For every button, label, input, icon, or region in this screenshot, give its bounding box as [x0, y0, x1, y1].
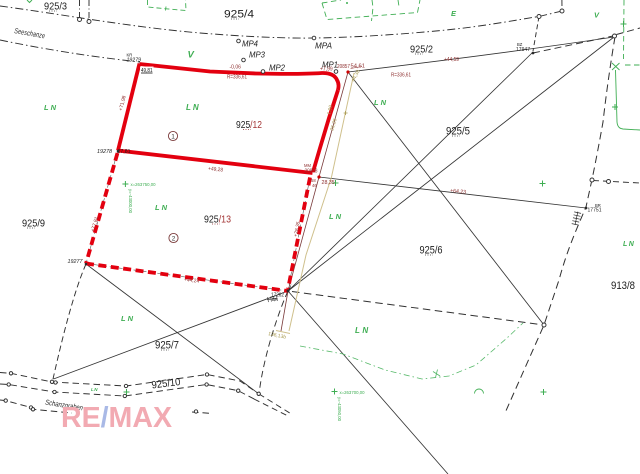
- svg-text:MP3: MP3: [249, 50, 265, 60]
- svg-text:913/8: 913/8: [611, 280, 635, 292]
- svg-text:-0,06: -0,06: [230, 65, 242, 71]
- svg-text:LN: LN: [121, 314, 135, 323]
- svg-text:LN: LN: [155, 203, 169, 212]
- svg-text:y=-43000,00: y=-43000,00: [128, 189, 133, 214]
- svg-text:LN: LN: [329, 212, 343, 221]
- svg-text:+44,59: +44,59: [444, 57, 459, 63]
- svg-text:V: V: [188, 50, 195, 61]
- svg-text:925/12: 925/12: [236, 120, 262, 131]
- svg-text:1: 1: [171, 134, 175, 141]
- svg-text:+7,99: +7,99: [320, 67, 333, 73]
- svg-text:19278: 19278: [97, 149, 113, 155]
- svg-text:LN: LN: [91, 387, 98, 392]
- svg-text:MPA: MPA: [315, 41, 332, 51]
- svg-text:46: 46: [312, 183, 317, 188]
- svg-text:20858: 20858: [305, 169, 318, 175]
- svg-text:RE/MAX: RE/MAX: [61, 402, 172, 434]
- svg-text:20857: 20857: [337, 64, 350, 70]
- svg-text:17947: 17947: [516, 47, 530, 53]
- svg-text:27,81: 27,81: [118, 149, 131, 155]
- svg-text:925/3: 925/3: [44, 1, 67, 13]
- svg-text:BR: BR: [272, 297, 278, 302]
- svg-text:925/9: 925/9: [22, 218, 45, 230]
- svg-text:MP2: MP2: [269, 63, 285, 73]
- svg-text:LN: LN: [355, 326, 371, 335]
- svg-text:54,61: 54,61: [351, 64, 366, 70]
- svg-text:x=263700,00: x=263700,00: [340, 390, 366, 395]
- svg-text:28,35: 28,35: [322, 180, 335, 186]
- svg-text:R=336,61: R=336,61: [227, 75, 247, 81]
- svg-text:x=263750,00: x=263750,00: [131, 182, 157, 187]
- svg-text:2: 2: [172, 236, 176, 243]
- svg-text:LN: LN: [186, 103, 201, 112]
- svg-text:LN: LN: [374, 98, 388, 107]
- svg-text:17751: 17751: [588, 208, 602, 214]
- svg-text:y=-43050,00: y=-43050,00: [337, 397, 342, 422]
- svg-text:925/2: 925/2: [410, 44, 433, 56]
- svg-text:19277: 19277: [68, 259, 84, 265]
- svg-text:R=336,61: R=336,61: [391, 73, 411, 79]
- svg-text:MP4: MP4: [242, 39, 258, 49]
- svg-text:MM: MM: [304, 163, 311, 168]
- svg-text:LN: LN: [44, 103, 58, 112]
- svg-text:19279: 19279: [127, 58, 142, 64]
- svg-text:LN: LN: [623, 241, 635, 248]
